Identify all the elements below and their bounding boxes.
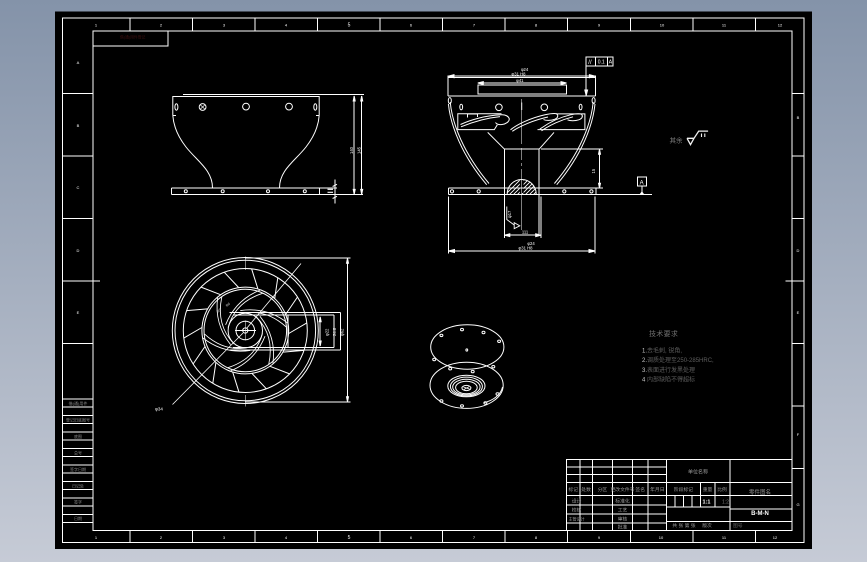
svg-text:共 张 第 张: 共 张 第 张 [672, 522, 695, 529]
svg-text:A: A [77, 60, 80, 65]
svg-text:借(通)用件登记: 借(通)用件登记 [120, 35, 146, 40]
svg-text:批准: 批准 [618, 524, 628, 531]
svg-text:140: 140 [349, 146, 354, 154]
svg-text:签字: 签字 [74, 499, 82, 505]
svg-text:技术要求: 技术要求 [649, 329, 678, 338]
svg-text:标记: 标记 [568, 486, 578, 493]
svg-text:C: C [77, 185, 80, 190]
svg-text:更改文件号: 更改文件号 [611, 486, 635, 493]
svg-text:A: A [640, 181, 644, 187]
svg-text:2.调质处理至250-285HRC,: 2.调质处理至250-285HRC, [642, 356, 714, 364]
svg-text:111: 111 [522, 230, 529, 235]
svg-text:处数: 处数 [581, 486, 591, 493]
svg-text:审核: 审核 [618, 516, 628, 523]
svg-text:阶段标记: 阶段标记 [674, 486, 693, 493]
svg-text:φ62: φ62 [339, 328, 344, 336]
svg-text:比例: 比例 [717, 486, 727, 493]
svg-text:年月日: 年月日 [650, 486, 664, 493]
svg-text:总号: 总号 [74, 450, 82, 456]
svg-text:B: B [77, 123, 80, 128]
svg-text:图号: 图号 [733, 523, 743, 529]
svg-text:0.1: 0.1 [598, 60, 605, 66]
svg-text:E: E [77, 310, 80, 315]
svg-text:φ41: φ41 [516, 78, 524, 83]
svg-text:φ34: φ34 [155, 407, 163, 412]
svg-text:24.8: 24.8 [332, 327, 337, 336]
svg-text:5: 5 [348, 23, 351, 29]
svg-text:5: 5 [348, 535, 351, 541]
svg-text:10: 10 [660, 23, 665, 28]
svg-text:10: 10 [659, 535, 664, 540]
svg-text:借(通)用件: 借(通)用件 [69, 400, 88, 406]
svg-text:D: D [797, 248, 800, 253]
svg-text:15: 15 [591, 168, 596, 173]
svg-text:B-M-N: B-M-N [751, 511, 769, 517]
svg-text:设计: 设计 [572, 498, 582, 505]
svg-text:1:2: 1:2 [722, 500, 729, 506]
svg-text:主管设计: 主管设计 [569, 516, 585, 522]
svg-text:签名: 签名 [635, 486, 645, 493]
svg-text:φ22: φ22 [324, 328, 329, 336]
svg-text:分区: 分区 [598, 486, 608, 493]
svg-text:其余: 其余 [670, 136, 684, 145]
svg-text:底图: 底图 [74, 433, 82, 439]
svg-text:校核: 校核 [572, 507, 582, 514]
svg-text:1:1: 1:1 [703, 500, 711, 506]
svg-text:φ31 H8: φ31 H8 [512, 71, 527, 76]
svg-text:标准化: 标准化 [615, 498, 630, 505]
svg-text:φ31 H8: φ31 H8 [519, 246, 534, 251]
svg-text:日记处: 日记处 [72, 483, 84, 489]
svg-text:E: E [797, 310, 800, 315]
svg-text:零件图名: 零件图名 [749, 488, 771, 496]
svg-text:登记旧底图号: 登记旧底图号 [66, 417, 90, 423]
svg-text:工艺: 工艺 [618, 508, 628, 514]
svg-text:D: D [77, 248, 80, 253]
svg-text:B: B [797, 115, 800, 120]
svg-text:签字日期: 签字日期 [70, 466, 86, 472]
svg-text:1.去毛刺, 锐角,: 1.去毛刺, 锐角, [642, 347, 682, 355]
svg-text:φ17: φ17 [507, 210, 512, 218]
svg-text:G: G [796, 502, 799, 507]
svg-text:12: 12 [778, 23, 783, 28]
svg-text:145: 145 [357, 146, 362, 154]
svg-text:版次: 版次 [702, 522, 712, 529]
svg-text:12: 12 [773, 535, 778, 540]
svg-text:单位名称: 单位名称 [688, 469, 708, 476]
svg-text:3.表面进行发黑处理: 3.表面进行发黑处理 [642, 366, 695, 374]
svg-text://: // [588, 60, 592, 66]
svg-text:4 内部缺陷不得超标: 4 内部缺陷不得超标 [642, 376, 695, 384]
svg-text:日期: 日期 [74, 515, 82, 521]
svg-text:重量: 重量 [703, 486, 713, 493]
